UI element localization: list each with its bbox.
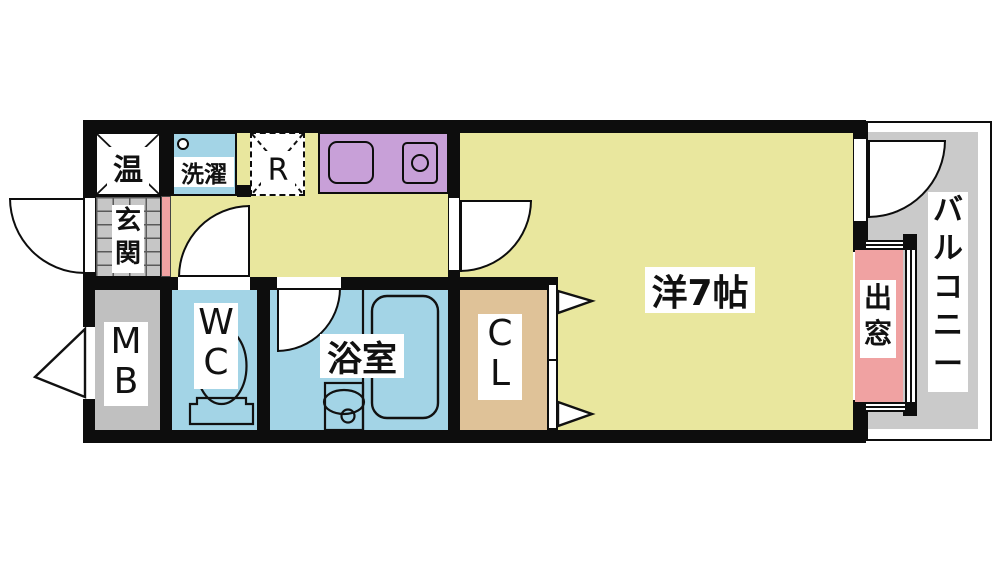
laundry-label: 洗濯 <box>174 157 234 187</box>
wc-door-opening <box>178 277 250 290</box>
bay-window-label: 出窓 <box>860 280 896 358</box>
entrance-door-swing <box>9 198 85 274</box>
wall-right-middle <box>853 220 866 252</box>
refrigerator-label: R <box>261 151 295 189</box>
room-door-opening <box>448 197 460 271</box>
kitchen-sink <box>328 141 374 184</box>
closet-door-divider <box>549 359 556 361</box>
closet-door-arrow-top <box>556 289 596 315</box>
wall-right-top <box>853 120 866 140</box>
bay-window-corner-bottom <box>903 402 917 416</box>
entrance-step-strip <box>161 196 171 277</box>
bay-window-glass-top <box>866 240 905 250</box>
western-room-label: 洋7帖 <box>645 267 755 313</box>
wall-heater-laundry <box>160 120 172 196</box>
balcony-label: バルコニー <box>928 192 968 392</box>
bay-window-corner-top <box>903 234 917 250</box>
meter-box-door-wedge <box>30 323 90 403</box>
meter-box-label: MB <box>104 322 148 406</box>
bathroom-label: 浴室 <box>320 334 404 378</box>
closet-door-arrow-bottom <box>556 399 596 429</box>
water-heater-label: 温 <box>107 147 149 187</box>
wall-mb-wc <box>160 290 172 430</box>
wall-right-bottom <box>853 400 866 443</box>
wall-stub-kitchen <box>237 185 251 197</box>
balcony-door-opening <box>853 138 867 222</box>
floor-plan: 温 洗濯 R 玄関 MB WC 浴室 CL 洋7帖 出窓 バルコニー <box>0 0 1000 562</box>
wall-bottom <box>83 430 866 443</box>
wc-label: WC <box>194 303 238 389</box>
wall-wc-bath <box>257 290 270 430</box>
bay-window-glass-bottom <box>866 402 905 412</box>
entrance-label: 玄関 <box>112 205 144 273</box>
bay-window-glass-right <box>905 250 917 402</box>
closet-label: CL <box>478 314 522 400</box>
stove-burner-icon <box>411 154 429 172</box>
wall-top <box>83 120 866 133</box>
wall-bath-closet <box>448 290 460 430</box>
laundry-faucet-icon <box>177 138 189 150</box>
